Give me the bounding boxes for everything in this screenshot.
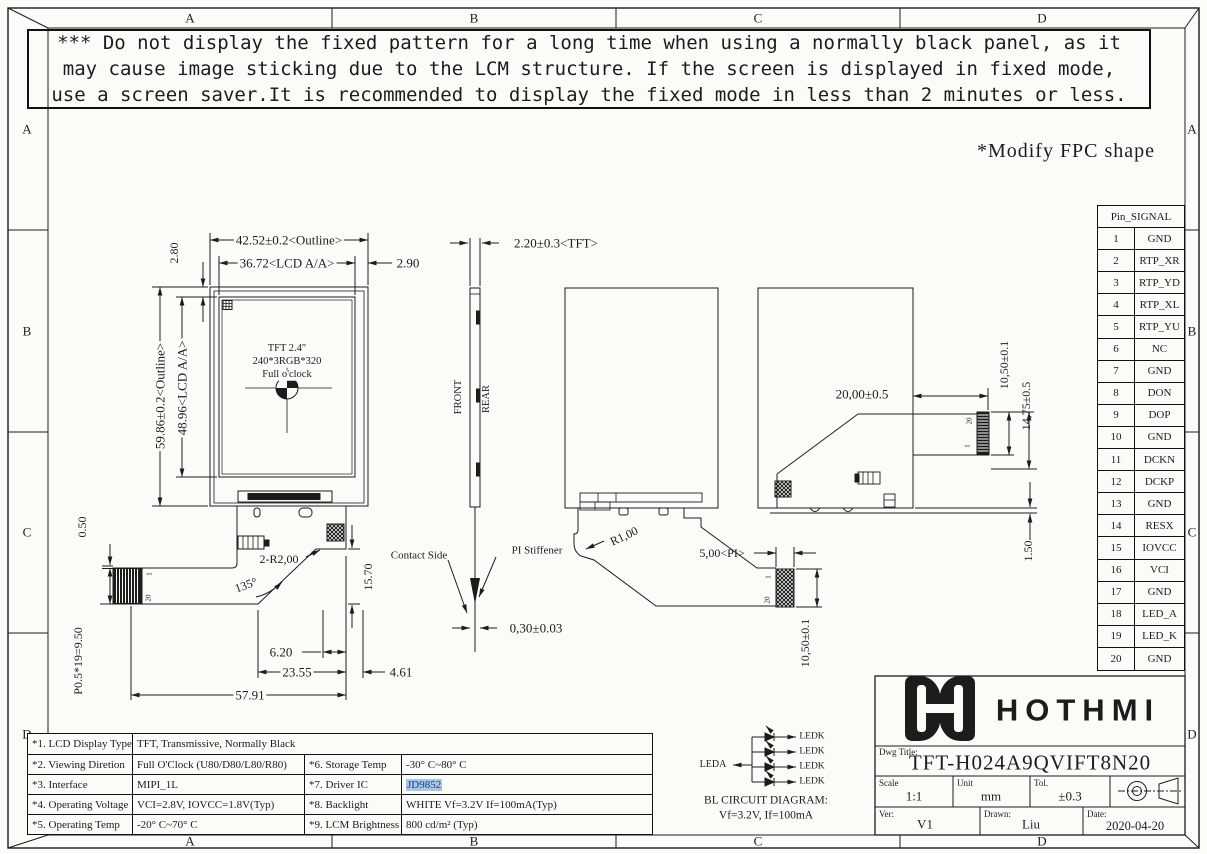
pin-no: 12 — [1098, 471, 1135, 493]
spec-label: *5. Operating Temp — [28, 814, 132, 834]
dim-20-00: 20,00±0.5 — [836, 388, 889, 401]
zone-col-c-bottom: C — [754, 835, 763, 848]
drawn-value: Liu — [1022, 818, 1040, 831]
spec-label: *9. LCM Brightness — [304, 814, 401, 834]
zone-row-b-left: B — [23, 325, 32, 338]
spec-table: *1. LCD Display Type TFT, Transmissive, … — [27, 733, 653, 835]
dim-contact-height: 15.70 — [362, 564, 374, 591]
pin-table-header: Pin_SIGNAL — [1098, 206, 1184, 228]
rear-view-2 — [758, 288, 1037, 540]
pin-no: 10 — [1098, 427, 1135, 449]
dim-fpc-thickness: 0,30±0.03 — [510, 622, 563, 635]
pin-no: 2 — [1098, 250, 1135, 272]
spec-label: *6. Storage Temp — [304, 754, 401, 774]
rear-face-label: REAR — [482, 385, 493, 413]
dim-corner-radius: 2-R2,00 — [260, 553, 299, 565]
dim-4-61: 4.61 — [390, 666, 413, 679]
spec-label: *8. Backlight — [304, 794, 401, 814]
leda-label: LEDA — [700, 760, 727, 770]
scale-label: Scale — [879, 779, 899, 788]
dim-1-50: 1.50 — [1022, 541, 1034, 562]
dim-pin-pitch: P0.5*19=9.50 — [72, 627, 84, 694]
screen-text-1: TFT 2.4″ — [266, 344, 309, 355]
modify-fpc-note: *Modify FPC shape — [977, 141, 1155, 161]
pin-signal: GND — [1135, 493, 1184, 515]
dim-23-55: 23.55 — [280, 666, 313, 679]
spec-label: *2. Viewing Diretion — [28, 754, 132, 774]
pin-no: 3 — [1098, 272, 1135, 294]
rear1-pin-20-label: 20 — [765, 597, 772, 604]
alignment-mark-icon — [223, 301, 232, 310]
zone-col-c-top: C — [754, 12, 763, 25]
warning-line-2: may cause image sticking due to the LCM … — [29, 56, 1149, 82]
spec-value: -30° C~80° C — [401, 754, 652, 774]
date-value: 2020-04-20 — [1106, 820, 1164, 833]
rear-view-1 — [565, 288, 822, 607]
zone-row-c-right: C — [1188, 526, 1197, 539]
zone-col-a-bottom: A — [185, 835, 194, 848]
pin-signal: DCKN — [1135, 449, 1184, 471]
pin-no: 20 — [1098, 648, 1135, 670]
pin-signal: DON — [1135, 383, 1184, 405]
pin-signal: LED_A — [1135, 604, 1184, 626]
dim-right-margin: 2.90 — [397, 257, 420, 270]
spec-label: *1. LCD Display Type — [28, 734, 132, 754]
zone-row-b-right: B — [1188, 325, 1197, 338]
dim-pin-offset: 0.50 — [76, 517, 88, 538]
bl-circuit-subtitle: Vf=3.2V, If=100mA — [719, 810, 813, 822]
drawn-label: Drawn: — [984, 810, 1011, 819]
spec-value: -20° C~70° C — [132, 814, 304, 834]
warning-box: *** Do not display the fixed pattern for… — [27, 29, 1151, 109]
dwg-title-value: TFT-H024A9QVIFT8N20 — [909, 753, 1151, 774]
unit-label: Unit — [957, 779, 973, 788]
dim-57-91: 57.91 — [233, 689, 266, 702]
pin-signal: GND — [1135, 361, 1184, 383]
spec-value: TFT, Transmissive, Normally Black — [132, 734, 652, 754]
spec-label: *4. Operating Voltage — [28, 794, 132, 814]
pin-signal-table: Pin_SIGNAL 1GND 2RTP_XR 3RTP_YD 4RTP_XL … — [1097, 205, 1185, 671]
ledk-label-2: LEDK — [799, 747, 824, 757]
spec-value: MIPI_1L — [132, 774, 304, 794]
zone-col-d-top: D — [1037, 12, 1046, 25]
spec-label: *7. Driver IC — [304, 774, 401, 794]
spec-value: JD9852 — [401, 774, 652, 794]
tol-label: Tol. — [1034, 779, 1048, 788]
spec-value: VCI=2.8V, IOVCC=1.8V(Typ) — [132, 794, 304, 814]
contact-side-label: Contact Side — [391, 551, 448, 562]
zone-col-a-top: A — [185, 12, 194, 25]
zone-row-a-right: A — [1187, 123, 1196, 136]
ledk-label-4: LEDK — [799, 777, 824, 787]
dim-top-margin: 2.80 — [168, 243, 180, 264]
pin-no: 1 — [1098, 228, 1135, 250]
dim-10-50: 10,50±0.1 — [998, 341, 1010, 390]
spec-value: WHITE Vf=3.2V If=100mA(Typ) — [401, 794, 652, 814]
pin-no: 9 — [1098, 405, 1135, 427]
pin-no: 13 — [1098, 493, 1135, 515]
unit-value: mm — [981, 790, 1001, 803]
dim-outline-width: 42.52±0.2<Outline> — [234, 234, 344, 247]
pin-no: 15 — [1098, 537, 1135, 559]
zone-row-a-left: A — [22, 123, 31, 136]
zone-col-b-bottom: B — [470, 835, 479, 848]
pin-no: 14 — [1098, 515, 1135, 537]
pin-no: 5 — [1098, 316, 1135, 338]
driver-ic-highlight: JD9852 — [406, 779, 442, 791]
front-view-outline — [210, 287, 368, 506]
pi-stiffener-label: PI Stiffener — [512, 546, 563, 557]
bl-circuit-title: BL CIRCUIT DIAGRAM: — [704, 795, 828, 807]
dim-r1: R1,00 — [608, 524, 639, 547]
bl-circuit — [733, 726, 796, 786]
drawing-sheet: A B C D A B C D A B C D A B C D *** Do n… — [0, 0, 1207, 854]
hothmi-logo — [905, 676, 975, 741]
pin-signal: RTP_YD — [1135, 272, 1184, 294]
pin-signal: RTP_XL — [1135, 294, 1184, 316]
dim-pi-width: 5,00<PI> — [699, 547, 744, 559]
pin-signal: LED_K — [1135, 626, 1184, 648]
pin-signal: NC — [1135, 339, 1184, 361]
pin-signal: GND — [1135, 648, 1184, 670]
rear2-pin-20-label: 20 — [967, 418, 974, 425]
pin-signal: GND — [1135, 582, 1184, 604]
zone-row-c-left: C — [23, 526, 32, 539]
front-view-dimensions — [100, 233, 467, 700]
dim-14-75: 14,75±0.5 — [1020, 382, 1032, 431]
third-angle-projection-icon — [1118, 778, 1183, 804]
brand-wordmark: HOTHMI — [996, 695, 1160, 726]
dim-tft-thickness: 2.20±0.3<TFT> — [514, 237, 598, 250]
zone-col-b-top: B — [470, 12, 479, 25]
pin-no: 8 — [1098, 383, 1135, 405]
ver-value: V1 — [917, 818, 933, 831]
zone-col-d-bottom: D — [1037, 835, 1046, 848]
screen-text-2: 240*3RGB*320 — [251, 357, 324, 368]
zone-row-d-right: D — [1187, 728, 1196, 741]
pin-no: 17 — [1098, 582, 1135, 604]
pin-signal: DCKP — [1135, 471, 1184, 493]
front-view-fpc — [113, 491, 346, 604]
dim-rear1-connector: 10,50±0.1 — [799, 619, 811, 668]
pin-no: 16 — [1098, 560, 1135, 582]
dim-active-height: 48.96<LCD A/A> — [176, 339, 189, 438]
pin-signal: RTP_YU — [1135, 316, 1184, 338]
tol-value: ±0.3 — [1058, 790, 1081, 803]
warning-line-3: use a screen saver.It is recommended to … — [29, 82, 1149, 108]
date-label: Date: — [1087, 810, 1107, 819]
rear2-pin-1-label: 1 — [965, 444, 972, 448]
dim-6-20: 6.20 — [270, 646, 293, 659]
side-view — [450, 238, 499, 652]
front-pin-1-label: 1 — [147, 572, 154, 576]
pin-no: 6 — [1098, 339, 1135, 361]
pin-no: 18 — [1098, 604, 1135, 626]
pin-no: 7 — [1098, 361, 1135, 383]
scale-value: 1:1 — [906, 790, 923, 803]
pin-signal: RESX — [1135, 515, 1184, 537]
warning-line-1: *** Do not display the fixed pattern for… — [29, 30, 1149, 56]
front-face-label: FRONT — [454, 380, 465, 414]
screen-text-3: Full o'clock — [260, 370, 313, 381]
pin-signal: GND — [1135, 427, 1184, 449]
front-pin-20-label: 20 — [146, 595, 153, 602]
pin-signal: GND — [1135, 228, 1184, 250]
rear1-pin-1-label: 1 — [766, 575, 773, 579]
ver-label: Ver: — [879, 810, 894, 819]
spec-value: 800 cd/m² (Typ) — [401, 814, 652, 834]
spec-label: *3. Interface — [28, 774, 132, 794]
pin-no: 4 — [1098, 294, 1135, 316]
pin-no: 19 — [1098, 626, 1135, 648]
ledk-label-1: LEDK — [799, 732, 824, 742]
dim-bend-angle: 135° — [233, 575, 259, 594]
pin-no: 11 — [1098, 449, 1135, 471]
dim-outline-height: 59.86±0.2<Outline> — [154, 341, 167, 451]
pin-signal: DOP — [1135, 405, 1184, 427]
ledk-label-3: LEDK — [799, 762, 824, 772]
dim-active-width: 36.72<LCD A/A> — [238, 257, 337, 270]
pin-signal: IOVCC — [1135, 537, 1184, 559]
pin-signal: RTP_XR — [1135, 250, 1184, 272]
spec-value: Full O'Clock (U80/D80/L80/R80) — [132, 754, 304, 774]
pin-signal: VCI — [1135, 560, 1184, 582]
